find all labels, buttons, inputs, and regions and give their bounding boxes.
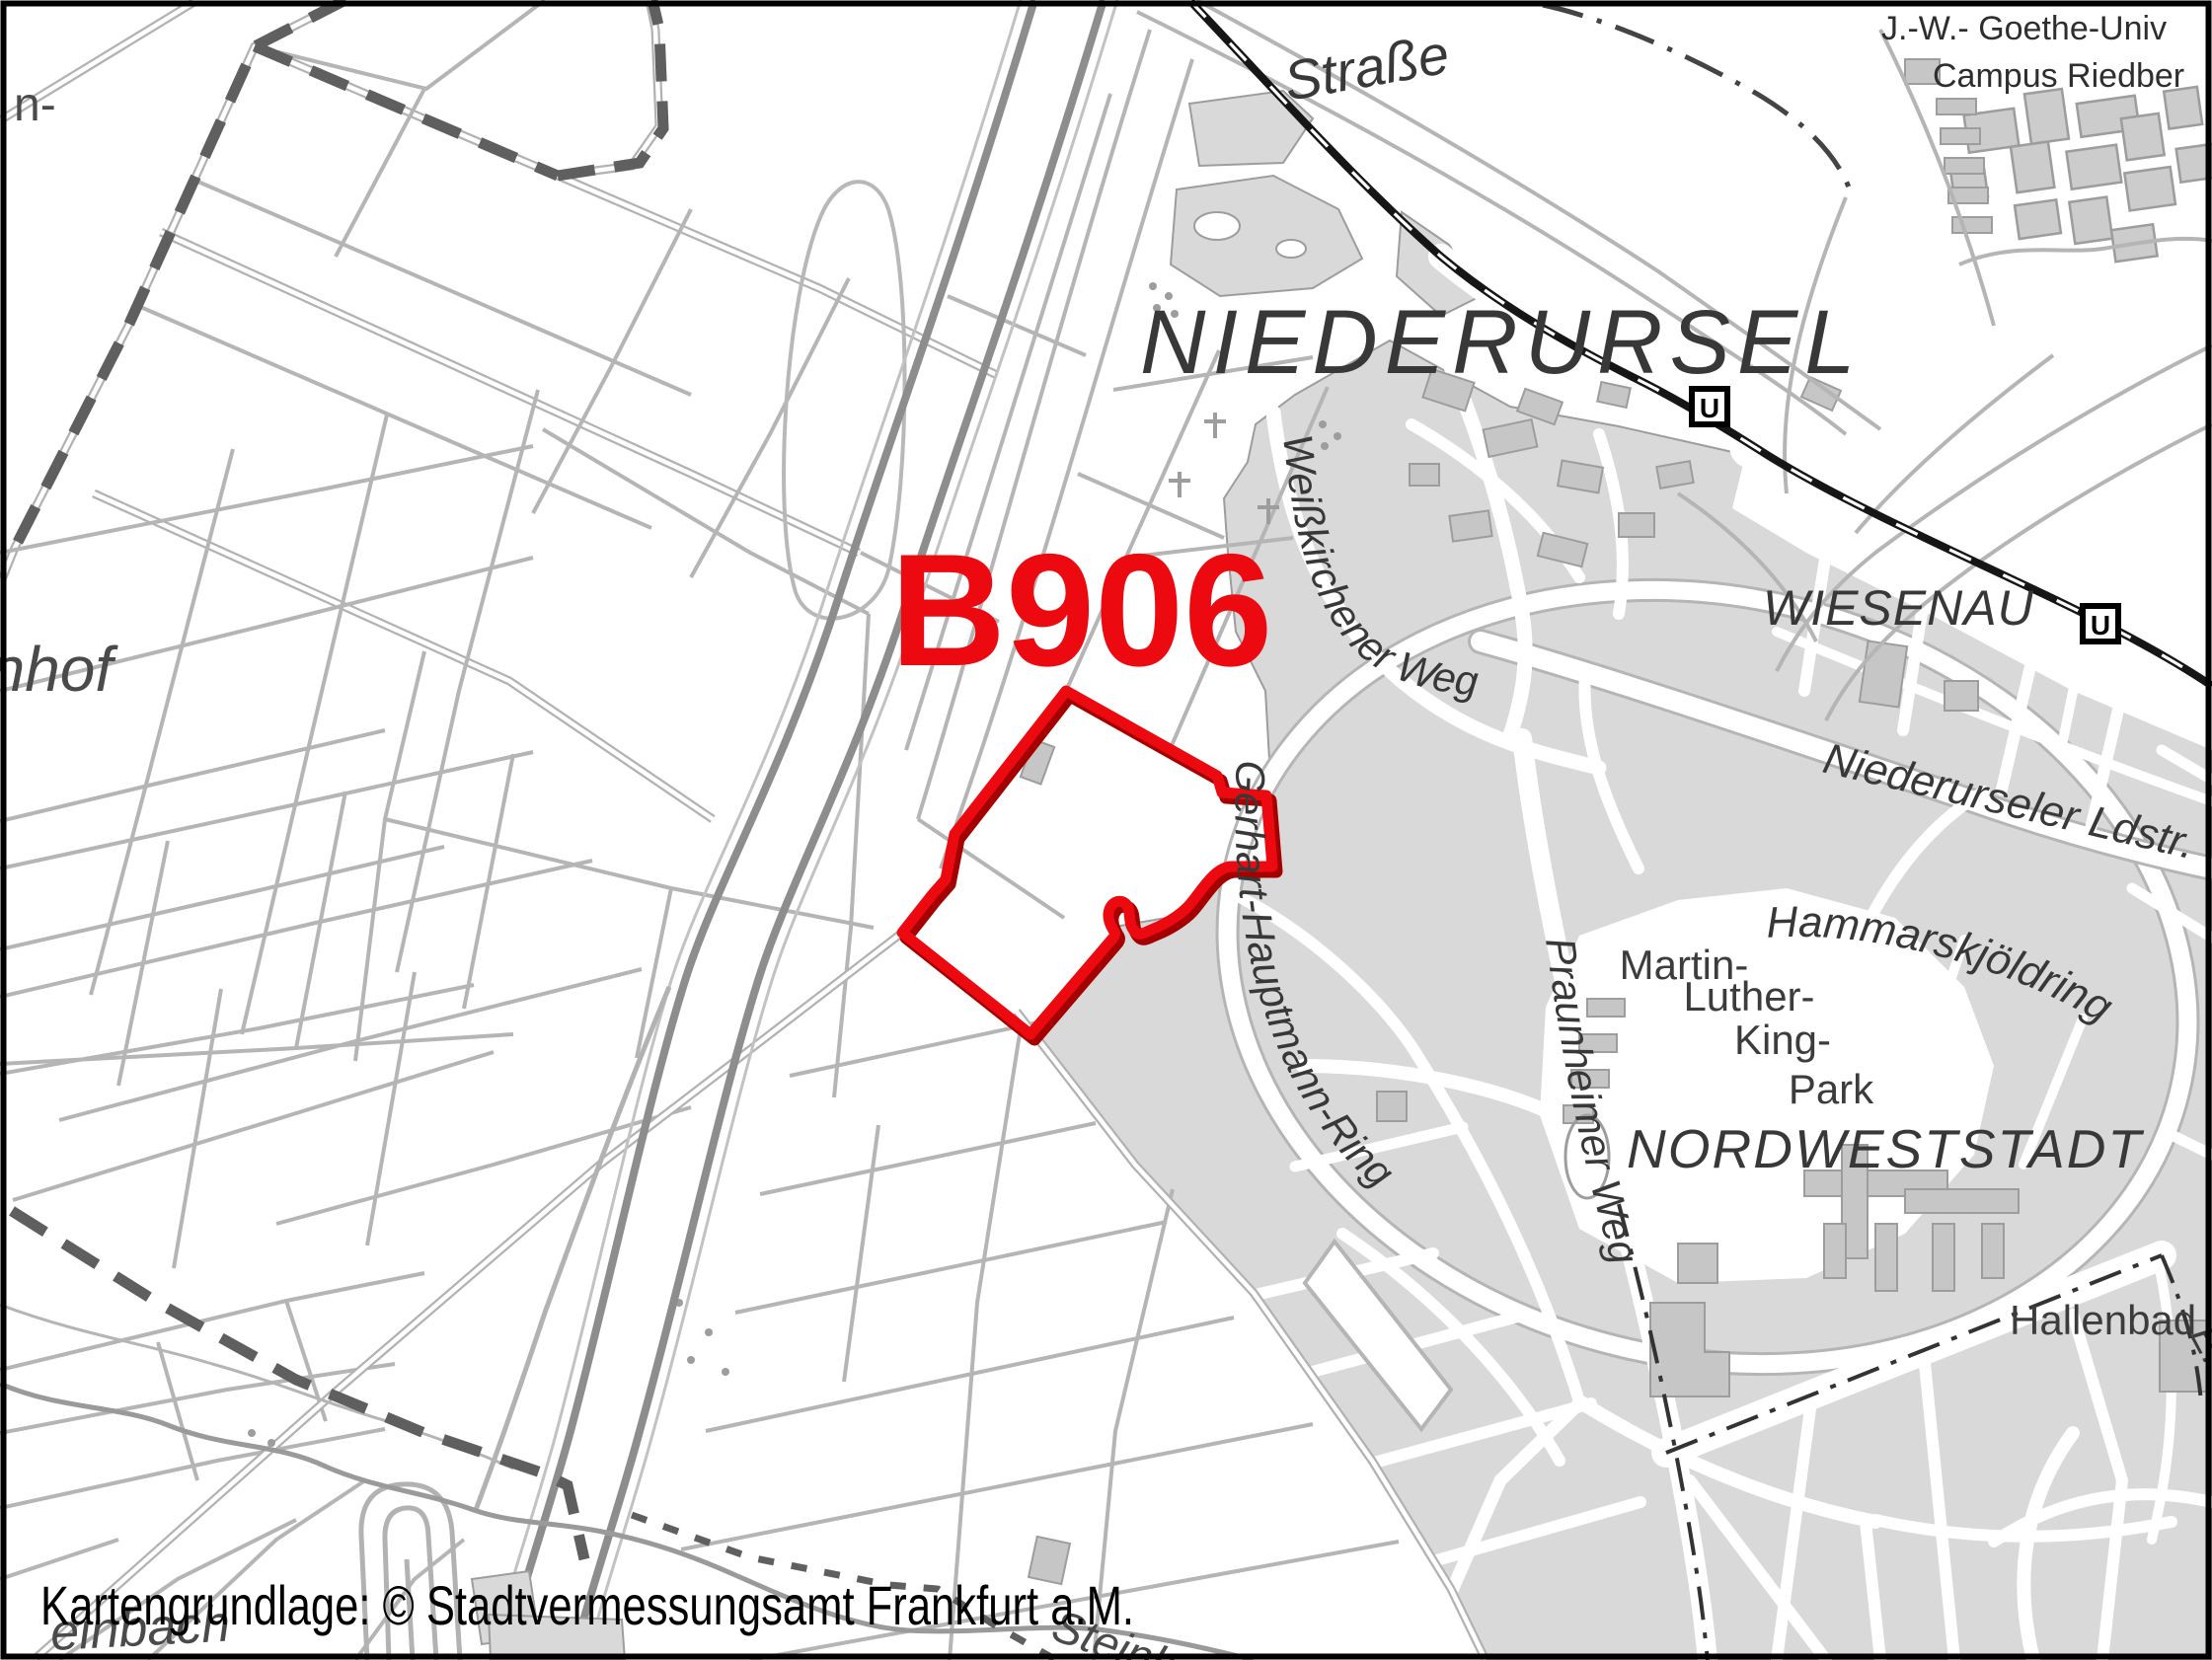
svg-text:Kartengrundlage: © Stadtvermes: Kartengrundlage: © Stadtvermessungsamt F…: [40, 1574, 1134, 1636]
svg-text:Campus Riedber: Campus Riedber: [1933, 57, 2184, 95]
svg-text:enhof: enhof: [0, 634, 118, 705]
svg-text:NORDWESTSTADT: NORDWESTSTADT: [1627, 1118, 2144, 1179]
svg-text:Park: Park: [1789, 1066, 1874, 1112]
svg-text:WIESENAU: WIESENAU: [1763, 580, 2034, 636]
svg-text:J.-W.- Goethe-Univ: J.-W.- Goethe-Univ: [1881, 10, 2167, 47]
svg-text:U: U: [2091, 610, 2110, 641]
svg-text:NIEDERURSEL: NIEDERURSEL: [1140, 292, 1862, 393]
svg-text:King-: King-: [1734, 1017, 1831, 1063]
svg-text:Hallenbad: Hallenbad: [2010, 1297, 2196, 1343]
svg-text:U: U: [1700, 393, 1719, 423]
svg-text:Luther-: Luther-: [1683, 973, 1814, 1019]
svg-text:B906: B906: [890, 521, 1272, 700]
svg-text:n-: n-: [14, 79, 56, 131]
